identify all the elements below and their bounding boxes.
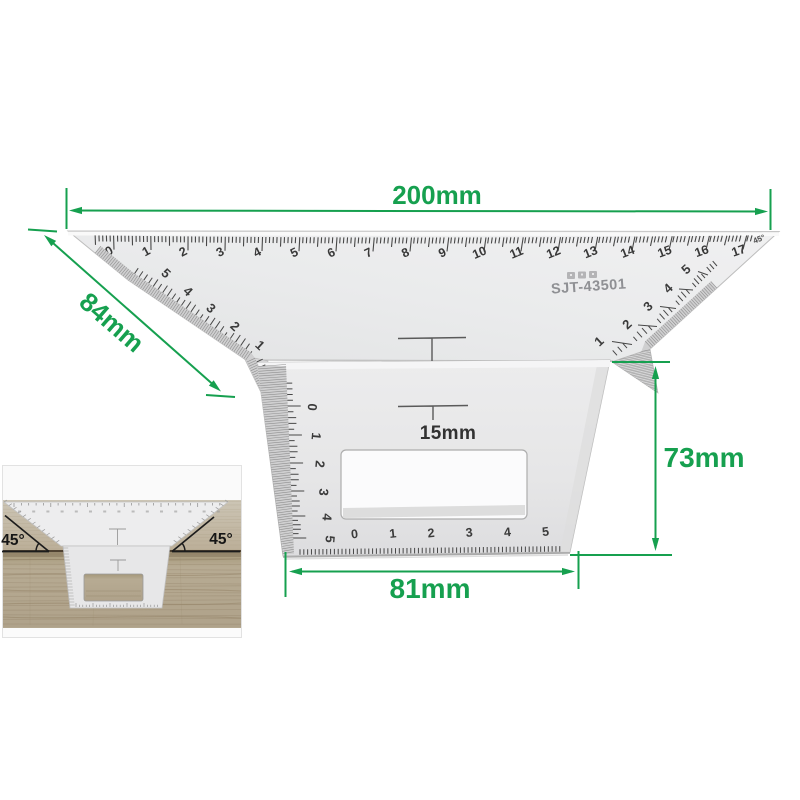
svg-text:0: 0 — [305, 403, 321, 412]
svg-text:45°: 45° — [209, 531, 232, 548]
svg-text:15mm: 15mm — [420, 423, 477, 444]
svg-text:200mm: 200mm — [392, 180, 482, 210]
svg-text:73mm: 73mm — [664, 442, 745, 473]
svg-text:45°: 45° — [1, 532, 24, 549]
svg-text:84mm: 84mm — [74, 286, 150, 358]
svg-text:1: 1 — [309, 432, 325, 441]
svg-text:81mm: 81mm — [390, 573, 471, 604]
svg-text:2: 2 — [312, 460, 328, 469]
svg-text:3: 3 — [316, 488, 332, 497]
svg-text:5: 5 — [322, 535, 338, 544]
